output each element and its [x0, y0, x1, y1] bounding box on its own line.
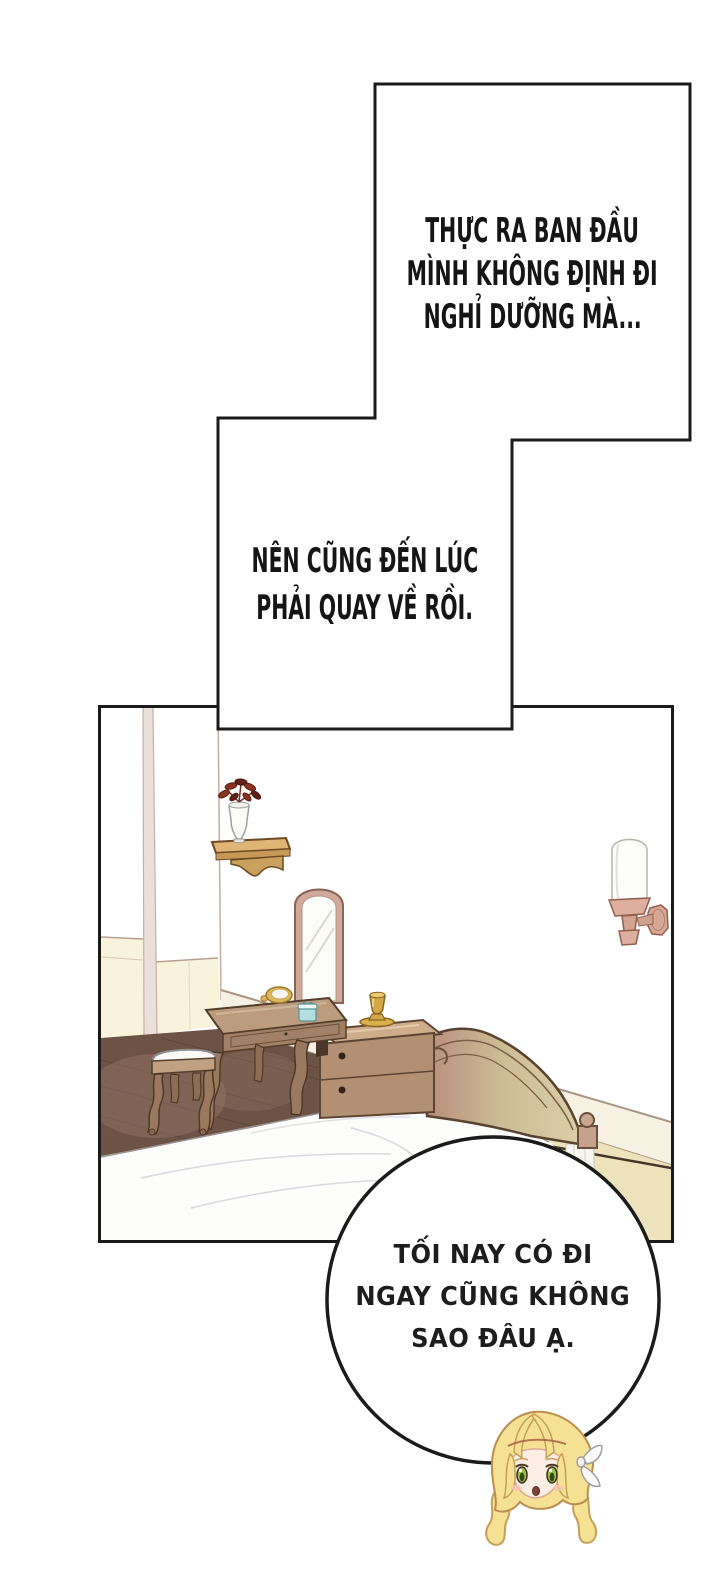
wainscot [101, 937, 221, 1042]
vanity-mirror [295, 890, 343, 1004]
speech-line: TỐI NAY CÓ ĐI [393, 1234, 592, 1276]
room-panel [98, 705, 674, 1243]
drawer-knob [339, 1053, 346, 1060]
comic-page: THỰC RA BAN ĐẦU MÌNH KHÔNG ĐỊNH ĐI NGHỈ … [0, 0, 720, 1587]
narration-box-2: NÊN CŨNG ĐẾN LÚC PHẢI QUAY VỀ RỒI. [218, 418, 512, 729]
wall-shelf [212, 838, 290, 876]
narration-line: NÊN CŨNG ĐẾN LÚC [252, 538, 479, 585]
speech-bubble-text: TỐI NAY CÓ ĐI NGAY CŨNG KHÔNG SAO ĐÂU Ạ. [327, 1234, 659, 1364]
narration-box-1: THỰC RA BAN ĐẦU MÌNH KHÔNG ĐỊNH ĐI NGHỈ … [375, 84, 690, 440]
plant [217, 778, 262, 802]
wainscot-left [101, 937, 145, 1042]
flower-vase [229, 802, 249, 843]
cosmetic-jar [298, 1002, 317, 1021]
hand-mirror [261, 987, 292, 1003]
wall-sconce [609, 840, 668, 946]
drawer-knob [339, 1087, 346, 1094]
room-illustration [101, 708, 671, 1240]
wainscot-right [155, 958, 221, 1034]
bed-post [578, 1126, 597, 1148]
chibi-blush [511, 1485, 522, 1491]
wall-pilaster [143, 708, 157, 1037]
bed-post-column [566, 1144, 594, 1240]
narration-line: NGHỈ DƯỠNG MÀ... [424, 296, 642, 339]
goblet [360, 992, 394, 1026]
narration-line: MÌNH KHÔNG ĐỊNH ĐI [407, 253, 658, 296]
table-leg [254, 1044, 264, 1082]
speech-line: SAO ĐÂU Ạ. [411, 1318, 575, 1360]
speech-line: NGAY CŨNG KHÔNG [356, 1276, 631, 1318]
narration-line: THỰC RA BAN ĐẦU [426, 210, 640, 253]
bed-post-knob [580, 1113, 594, 1127]
shelf-bracket [231, 856, 283, 876]
chibi-mouth [533, 1487, 540, 1496]
chibi-blush [553, 1485, 564, 1491]
narration-line: PHẢI QUAY VỀ RỒI. [257, 585, 474, 632]
chibi-character [478, 1398, 620, 1560]
